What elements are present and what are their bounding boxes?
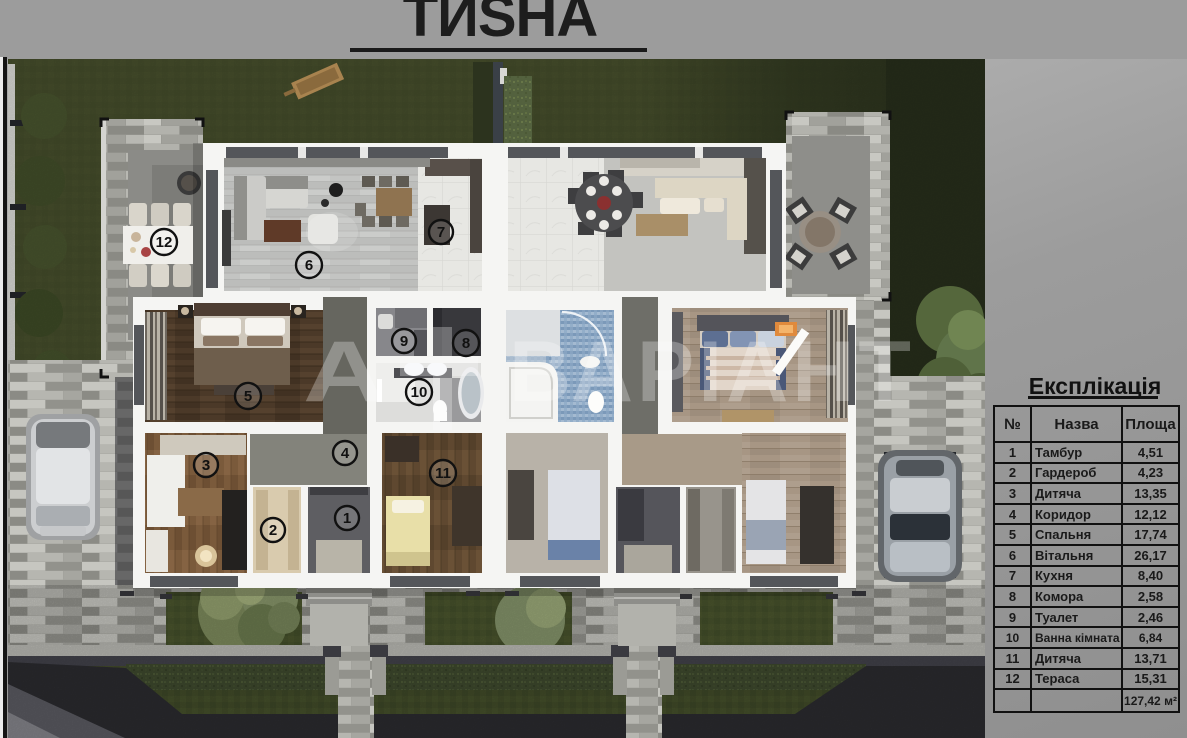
svg-text:А: А [303,324,385,420]
svg-text:9: 9 [400,333,408,350]
svg-text:4: 4 [341,445,350,462]
svg-text:5: 5 [244,388,252,405]
svg-text:6: 6 [305,257,313,274]
svg-text:10: 10 [411,384,428,401]
svg-text:ВАРІАНТ: ВАРІАНТ [509,324,915,420]
svg-text:1: 1 [343,510,351,527]
svg-text:7: 7 [437,224,445,241]
svg-text:8: 8 [462,335,470,352]
svg-text:12: 12 [156,234,173,251]
svg-text:2: 2 [269,522,277,539]
svg-text:3: 3 [202,457,210,474]
svg-text:11: 11 [435,465,451,482]
